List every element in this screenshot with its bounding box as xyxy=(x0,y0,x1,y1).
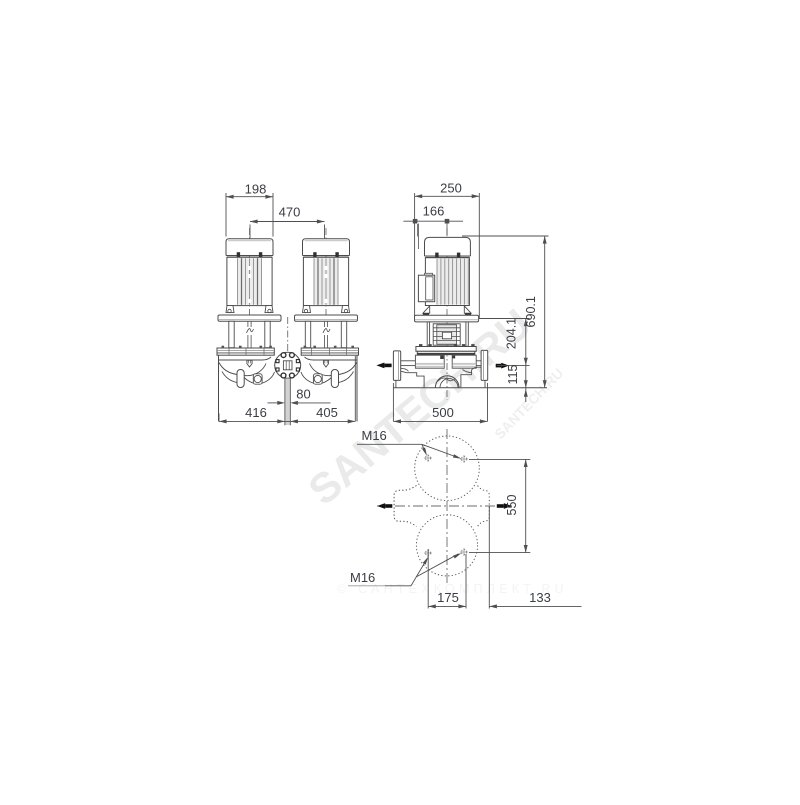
svg-text:550: 550 xyxy=(505,495,519,516)
svg-text:690.1: 690.1 xyxy=(524,296,538,327)
svg-text:416: 416 xyxy=(245,405,267,420)
svg-text:115: 115 xyxy=(506,364,520,384)
svg-text:500: 500 xyxy=(432,405,454,420)
svg-text:250: 250 xyxy=(440,180,462,195)
svg-text:80: 80 xyxy=(296,386,310,401)
svg-text:133: 133 xyxy=(529,590,551,605)
svg-text:405: 405 xyxy=(316,405,338,420)
svg-text:M16: M16 xyxy=(350,570,375,585)
svg-text:M16: M16 xyxy=(362,428,387,443)
svg-text:166: 166 xyxy=(423,204,445,219)
svg-text:175: 175 xyxy=(437,590,459,605)
svg-text:204.1: 204.1 xyxy=(504,318,518,349)
svg-text:198: 198 xyxy=(245,181,267,196)
svg-text:470: 470 xyxy=(279,205,301,220)
